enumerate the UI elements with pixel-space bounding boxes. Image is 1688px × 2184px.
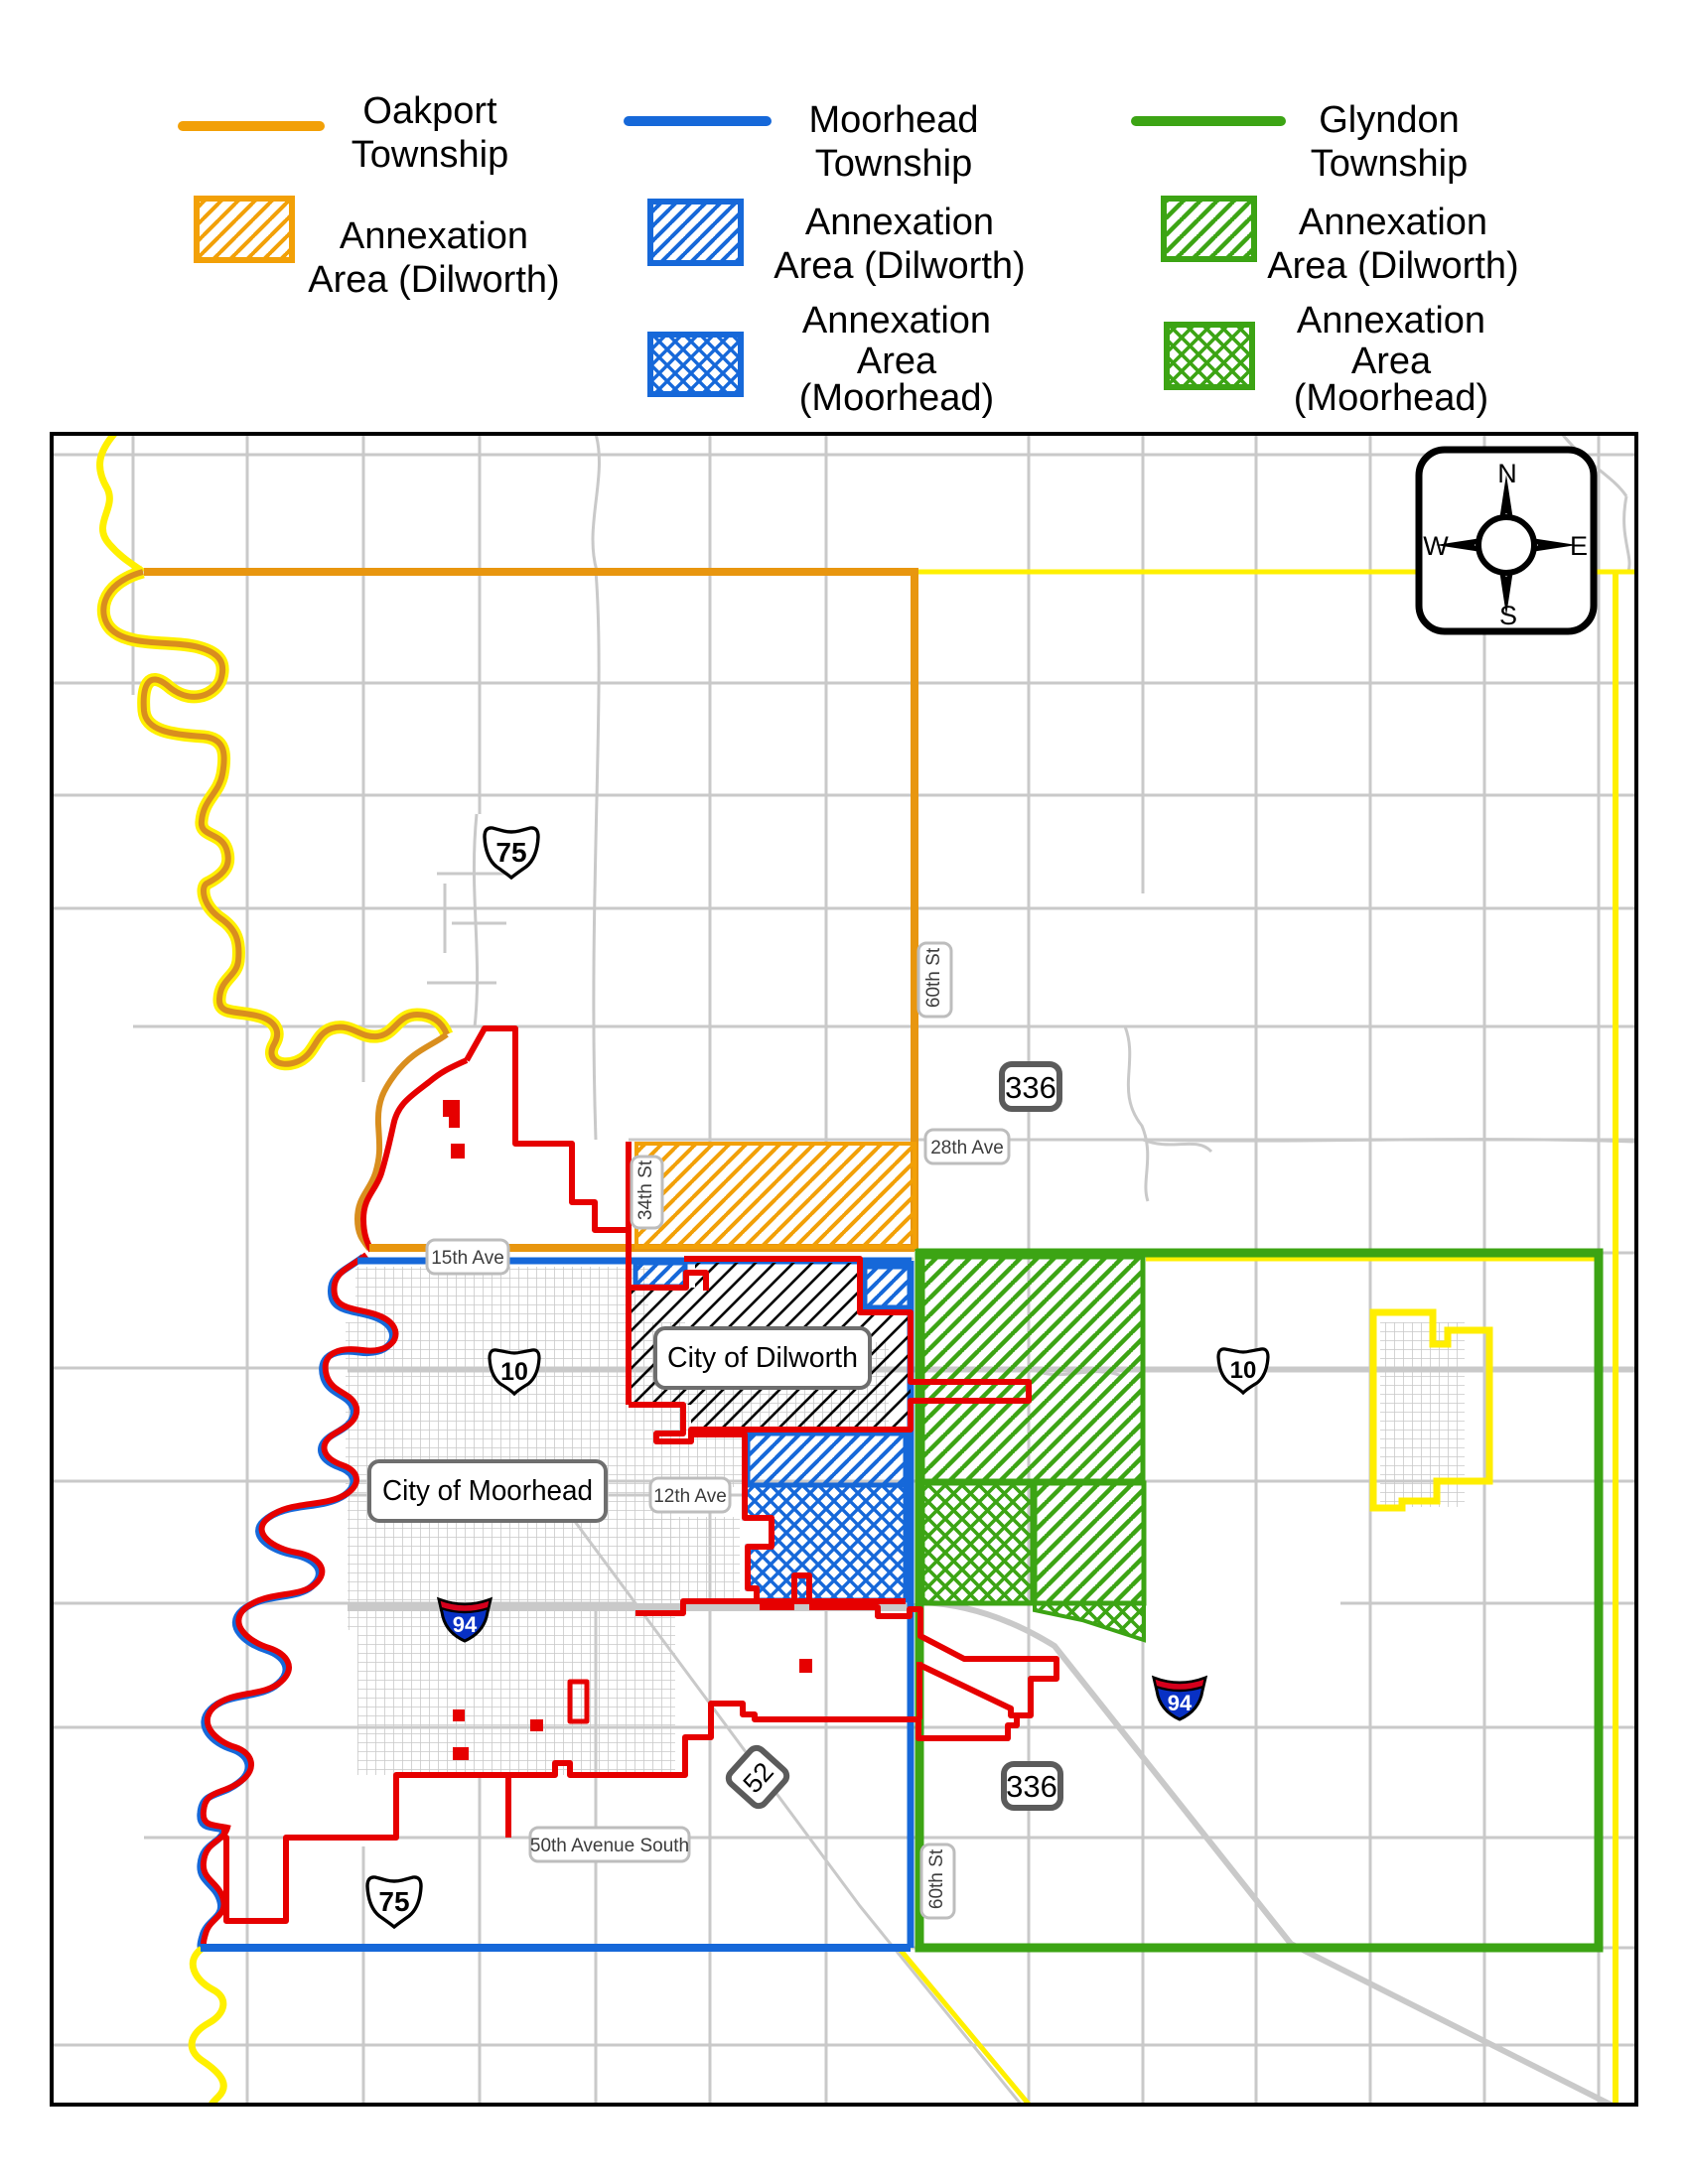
svg-text:10: 10	[500, 1358, 528, 1386]
svg-text:Area (Dilworth): Area (Dilworth)	[774, 245, 1025, 287]
svg-text:Oakport: Oakport	[362, 90, 497, 132]
svg-text:50th Avenue South: 50th Avenue South	[530, 1836, 689, 1856]
svg-text:10: 10	[1230, 1357, 1257, 1384]
svg-text:S: S	[1499, 601, 1517, 630]
svg-text:Annexation: Annexation	[1297, 300, 1485, 341]
svg-text:W: W	[1423, 531, 1449, 561]
svg-text:Area: Area	[1351, 341, 1432, 382]
svg-text:Township: Township	[352, 134, 508, 176]
svg-text:Area (Dilworth): Area (Dilworth)	[1267, 245, 1518, 287]
svg-text:28th Ave: 28th Ave	[930, 1138, 1004, 1159]
svg-text:34th St: 34th St	[635, 1160, 656, 1220]
svg-text:N: N	[1497, 459, 1517, 488]
svg-text:(Moorhead): (Moorhead)	[1294, 377, 1488, 419]
svg-text:Annexation: Annexation	[805, 202, 994, 243]
svg-text:City of Dilworth: City of Dilworth	[667, 1342, 858, 1374]
svg-text:15th Ave: 15th Ave	[431, 1248, 504, 1269]
svg-text:Township: Township	[815, 143, 972, 185]
svg-text:City of Moorhead: City of Moorhead	[382, 1475, 593, 1507]
svg-text:Glyndon: Glyndon	[1319, 99, 1460, 141]
svg-text:Township: Township	[1311, 143, 1468, 185]
svg-text:Moorhead: Moorhead	[808, 99, 978, 141]
svg-text:(Moorhead): (Moorhead)	[799, 377, 994, 419]
svg-text:60th St: 60th St	[923, 947, 944, 1008]
svg-text:Annexation: Annexation	[802, 300, 991, 341]
svg-text:E: E	[1570, 531, 1588, 561]
svg-text:Annexation: Annexation	[340, 215, 528, 257]
svg-text:Annexation: Annexation	[1299, 202, 1487, 243]
svg-text:12th Ave: 12th Ave	[653, 1486, 727, 1507]
svg-text:Area: Area	[857, 341, 937, 382]
svg-text:60th St: 60th St	[926, 1848, 947, 1909]
svg-text:336: 336	[1005, 1070, 1056, 1105]
svg-text:Area (Dilworth): Area (Dilworth)	[308, 259, 559, 301]
svg-text:336: 336	[1006, 1769, 1057, 1804]
